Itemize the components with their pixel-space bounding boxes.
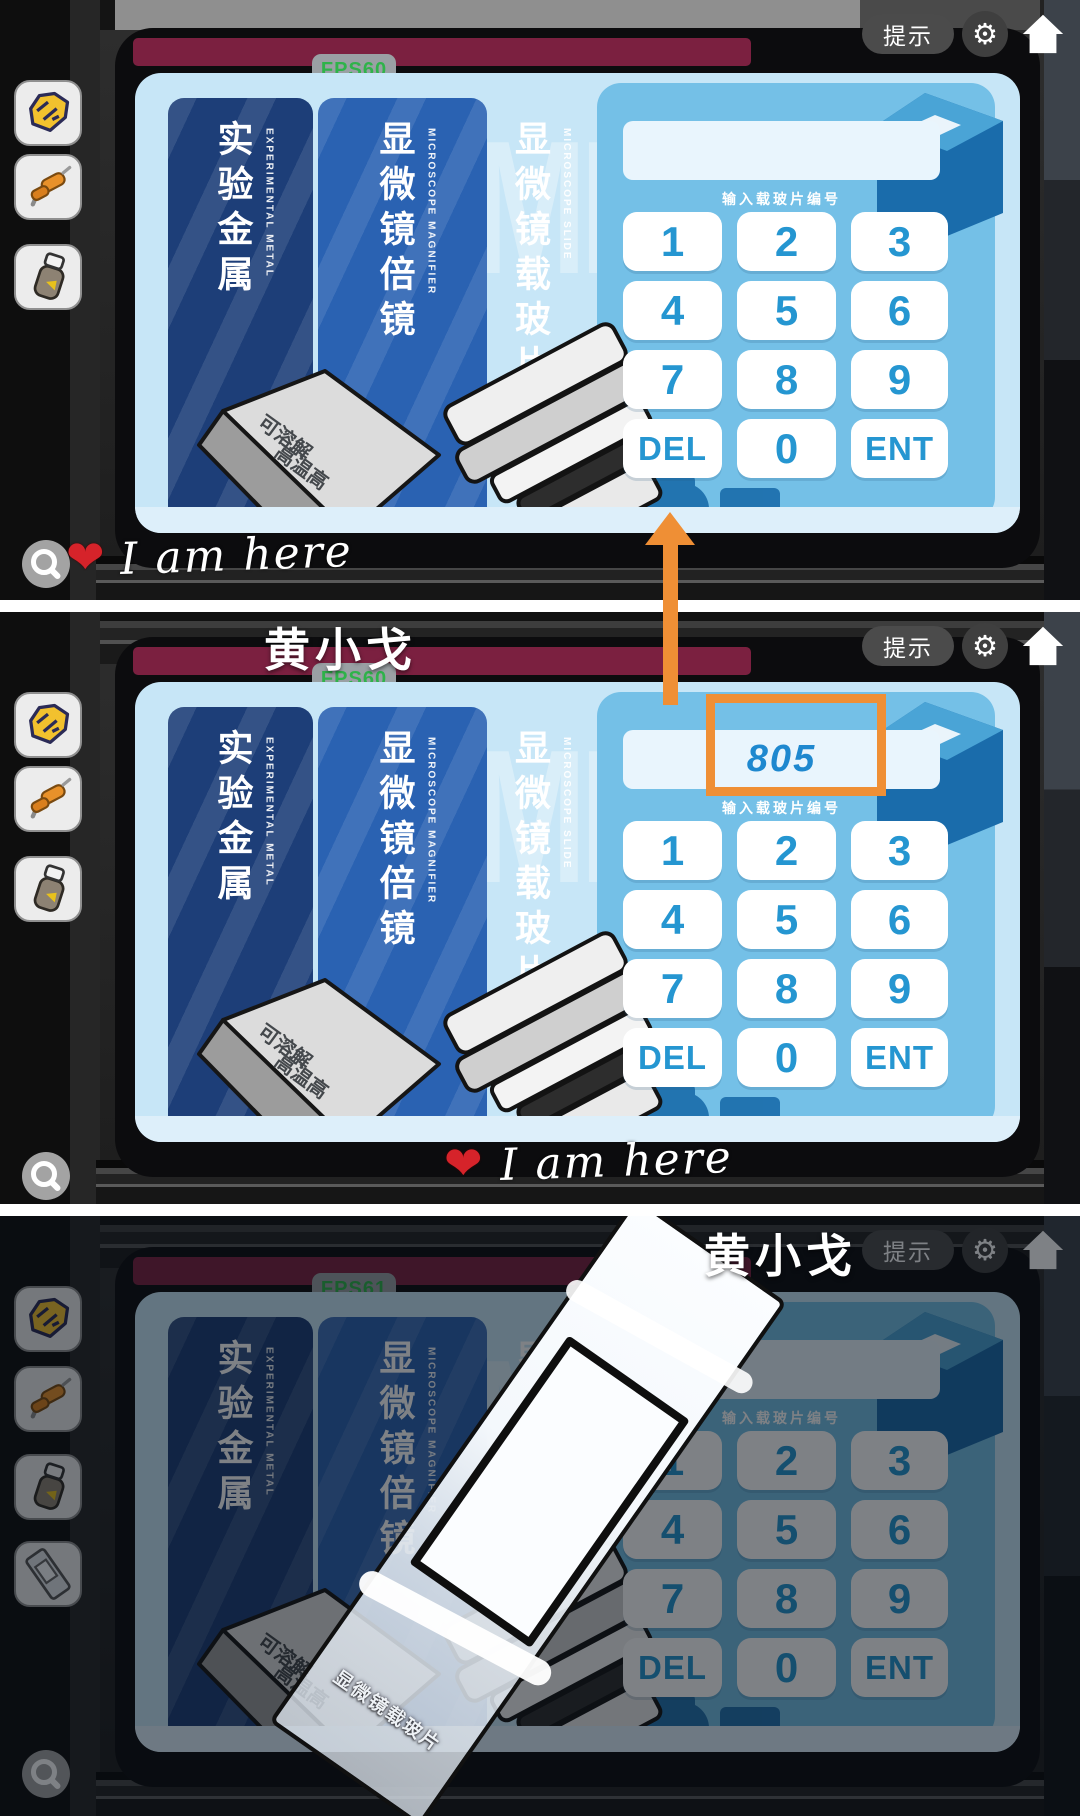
- key-2[interactable]: 2: [737, 821, 836, 880]
- key-3[interactable]: 3: [851, 212, 948, 271]
- key-2[interactable]: 2: [737, 212, 836, 271]
- metal-scrap-icon: [22, 87, 74, 139]
- player-watermark: 黄小戈: [264, 614, 417, 680]
- key-5[interactable]: 5: [737, 890, 836, 949]
- column-label-cn: 实验金属: [207, 729, 259, 1142]
- panel-divider: [0, 1204, 1080, 1216]
- gear-icon[interactable]: ⚙: [962, 11, 1008, 57]
- reagent-bottle-icon: [22, 251, 74, 303]
- console-slot-bar: [133, 647, 751, 675]
- key-9[interactable]: 9: [851, 350, 948, 409]
- key-9[interactable]: 9: [851, 959, 948, 1018]
- column-microscope-slide: 显微镜载玻片 MICROSCOPE SLIDE: [491, 98, 585, 533]
- key-ent[interactable]: ENT: [851, 419, 948, 478]
- microscope-console: FPS60 MIC 实验金属 EXPERIMENTAL METAL 显微镜倍镜 …: [115, 637, 1040, 1177]
- panel-divider: [0, 600, 1080, 612]
- column-microscope-magnifier: 显微镜倍镜 MICROSCOPE MAGNIFIER: [318, 98, 487, 533]
- i-am-here-annotation: I am here: [119, 526, 353, 585]
- inventory-metal-scrap[interactable]: [14, 692, 82, 758]
- screenshot-panel-1: FPS60 MIC 实验金属 EXPERIMENTAL METAL 显微镜倍镜 …: [0, 0, 1080, 600]
- console-screen: MIC 实验金属 EXPERIMENTAL METAL 显微镜倍镜 MICROS…: [135, 73, 1020, 533]
- key-8[interactable]: 8: [737, 959, 836, 1018]
- gear-icon[interactable]: ⚙: [962, 623, 1008, 669]
- column-experimental-metal: 实验金属 EXPERIMENTAL METAL: [168, 707, 313, 1142]
- slide-number-input[interactable]: [623, 121, 940, 180]
- heart-icon: ❤: [66, 534, 105, 580]
- key-5[interactable]: 5: [737, 281, 836, 340]
- machine-right-column: [1044, 0, 1080, 600]
- key-ent[interactable]: ENT: [851, 1028, 948, 1087]
- magnifier-handle: [48, 567, 61, 580]
- inventory-wire-tool[interactable]: [14, 766, 82, 832]
- key-6[interactable]: 6: [851, 281, 948, 340]
- home-icon[interactable]: [1020, 9, 1066, 57]
- key-8[interactable]: 8: [737, 350, 836, 409]
- column-label-cn: 显微镜载玻片: [504, 120, 556, 533]
- key-del[interactable]: DEL: [623, 419, 722, 478]
- slide-label: 显微镜载玻片: [309, 1649, 467, 1771]
- inventory-reagent-bottle[interactable]: [14, 856, 82, 922]
- key-del[interactable]: DEL: [623, 1028, 722, 1087]
- column-microscope-slide: 显微镜载玻片 MICROSCOPE SLIDE: [491, 707, 585, 1142]
- column-label-en: MICROSCOPE MAGNIFIER: [426, 128, 437, 533]
- machine-right-column: [1044, 612, 1080, 1204]
- home-icon[interactable]: [1020, 621, 1066, 669]
- screenshot-panel-2: FPS60 MIC 实验金属 EXPERIMENTAL METAL 显微镜倍镜 …: [0, 612, 1080, 1204]
- key-3[interactable]: 3: [851, 821, 948, 880]
- input-hint-label: 输入载玻片编号: [623, 798, 940, 818]
- key-0[interactable]: 0: [737, 1028, 836, 1087]
- column-label-cn: 实验金属: [207, 120, 259, 533]
- key-4[interactable]: 4: [623, 890, 722, 949]
- column-label-en: EXPERIMENTAL METAL: [264, 128, 275, 533]
- column-label-en: EXPERIMENTAL METAL: [264, 737, 275, 1142]
- key-1[interactable]: 1: [623, 821, 722, 880]
- column-label-en: MICROSCOPE MAGNIFIER: [426, 737, 437, 1142]
- metal-scrap-icon: [22, 699, 74, 751]
- key-7[interactable]: 7: [623, 350, 722, 409]
- wire-tool-icon: [22, 773, 74, 825]
- player-watermark: 黄小戈: [704, 1220, 857, 1286]
- inventory-reagent-bottle[interactable]: [14, 244, 82, 310]
- inventory-wire-tool[interactable]: [14, 154, 82, 220]
- console-screen: MIC 实验金属 EXPERIMENTAL METAL 显微镜倍镜 MICROS…: [135, 682, 1020, 1142]
- magnifier-handle: [48, 1179, 61, 1192]
- column-microscope-magnifier: 显微镜倍镜 MICROSCOPE MAGNIFIER: [318, 707, 487, 1142]
- column-label-cn: 显微镜倍镜: [369, 729, 421, 1142]
- console-slot-bar: [133, 38, 751, 66]
- hint-button[interactable]: 提示: [862, 14, 954, 54]
- reagent-bottle-icon: [22, 863, 74, 915]
- column-label-en: MICROSCOPE SLIDE: [561, 737, 572, 1142]
- input-hint-label: 输入载玻片编号: [623, 189, 940, 209]
- slide-number-input[interactable]: 805: [623, 730, 940, 789]
- hint-button[interactable]: 提示: [862, 626, 954, 666]
- key-7[interactable]: 7: [623, 959, 722, 1018]
- key-0[interactable]: 0: [737, 419, 836, 478]
- search-icon[interactable]: [22, 540, 70, 588]
- wire-tool-icon: [22, 161, 74, 213]
- key-4[interactable]: 4: [623, 281, 722, 340]
- key-6[interactable]: 6: [851, 890, 948, 949]
- heart-icon: ❤: [444, 1140, 483, 1186]
- column-experimental-metal: 实验金属 EXPERIMENTAL METAL: [168, 98, 313, 533]
- microscope-console: FPS60 MIC 实验金属 EXPERIMENTAL METAL 显微镜倍镜 …: [115, 28, 1040, 568]
- key-1[interactable]: 1: [623, 212, 722, 271]
- search-icon[interactable]: [22, 1152, 70, 1200]
- column-label-en: MICROSCOPE SLIDE: [561, 128, 572, 533]
- inventory-metal-scrap[interactable]: [14, 80, 82, 146]
- i-am-here-annotation: I am here: [499, 1132, 733, 1191]
- screenshot-panel-3: FPS61 MIC 实验金属 EXPERIMENTAL METAL 显微镜倍镜 …: [0, 1216, 1080, 1816]
- column-label-cn: 显微镜倍镜: [369, 120, 421, 533]
- column-label-cn: 显微镜载玻片: [504, 729, 556, 1142]
